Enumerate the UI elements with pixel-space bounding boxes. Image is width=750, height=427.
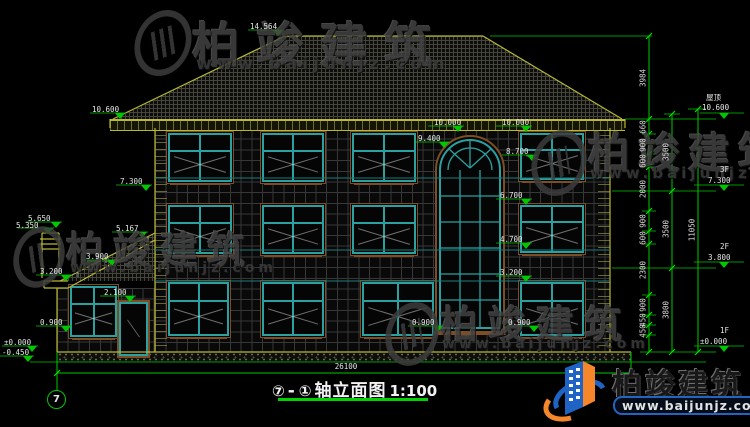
- level-label: 8.700: [506, 147, 529, 156]
- window: [352, 133, 416, 182]
- level-label: 0.900: [508, 318, 531, 327]
- arched-stair-window: [434, 134, 506, 336]
- window: [168, 282, 229, 336]
- level-label: 0.900: [412, 318, 435, 327]
- level-label: 3.200: [40, 267, 63, 276]
- dim-label: 11050: [688, 219, 697, 242]
- floor-elev: 7.300: [708, 176, 731, 185]
- brand-logo-site: www.baijunjz.com: [613, 396, 750, 415]
- floor-elev: ±0.000: [700, 337, 727, 346]
- dim-label: 2300: [639, 261, 648, 279]
- brand-logo-icon: [543, 356, 605, 422]
- window: [262, 133, 324, 182]
- dim-label: 600: [639, 154, 648, 168]
- dim-label: 900: [639, 298, 648, 312]
- dim-label: 450: [639, 324, 648, 338]
- floor-name: 1F: [720, 326, 729, 335]
- window: [362, 282, 434, 336]
- total-width-dim: 26100: [326, 362, 366, 371]
- level-label: 2.100: [104, 288, 127, 297]
- level-label: 5.167: [116, 224, 139, 233]
- dim-label: 3984: [639, 69, 648, 87]
- level-label: 10.000: [502, 118, 529, 127]
- floor-name: 3F: [720, 165, 729, 174]
- level-label: 5.350: [16, 221, 39, 230]
- level-label: 0.900: [40, 318, 63, 327]
- main-roof: [113, 36, 622, 120]
- window: [352, 205, 416, 254]
- window: [168, 133, 232, 182]
- dim-label: 600: [639, 231, 648, 245]
- level-label: ±0.000: [4, 338, 31, 347]
- dim-label: 2000: [639, 180, 648, 198]
- level-label: 6.700: [500, 191, 523, 200]
- floor-elev: 10.600: [702, 103, 729, 112]
- floor-name: 屋顶: [706, 92, 721, 103]
- level-label: 3.900: [86, 252, 109, 261]
- level-label: 10.600: [92, 105, 119, 114]
- watermark-logo-icon: [130, 1, 195, 84]
- dim-label: 3800: [662, 301, 671, 319]
- level-label: 4.700: [500, 235, 523, 244]
- level-label: 10.000: [434, 118, 461, 127]
- level-label: -0.450: [2, 348, 29, 357]
- level-label: 7.300: [120, 177, 143, 186]
- dim-label: 660: [639, 120, 648, 134]
- window: [520, 205, 584, 253]
- window: [262, 282, 324, 336]
- level-label: 3.200: [500, 268, 523, 277]
- eave-band: [110, 119, 625, 131]
- corner-quoins-right: [598, 128, 610, 352]
- dim-label: 3500: [662, 143, 671, 161]
- title-underline: [278, 398, 428, 401]
- cad-elevation-drawing: 14.564 10.600 7.300 5.650 5.350 5.167 3.…: [0, 0, 750, 427]
- dim-label: 3500: [662, 220, 671, 238]
- window: [262, 205, 324, 254]
- corner-quoins-left: [155, 128, 167, 352]
- axis-bubble-7: 7: [47, 390, 66, 409]
- entry-door: [119, 302, 148, 356]
- window: [168, 205, 232, 254]
- floor-name: 2F: [720, 242, 729, 251]
- dim-label: 900: [639, 138, 648, 152]
- window: [520, 282, 584, 336]
- level-label: 14.564: [250, 22, 277, 31]
- level-label: 9.400: [418, 134, 441, 143]
- dim-label: 900: [639, 214, 648, 228]
- window: [520, 133, 584, 180]
- floor-elev: 3.800: [708, 253, 731, 262]
